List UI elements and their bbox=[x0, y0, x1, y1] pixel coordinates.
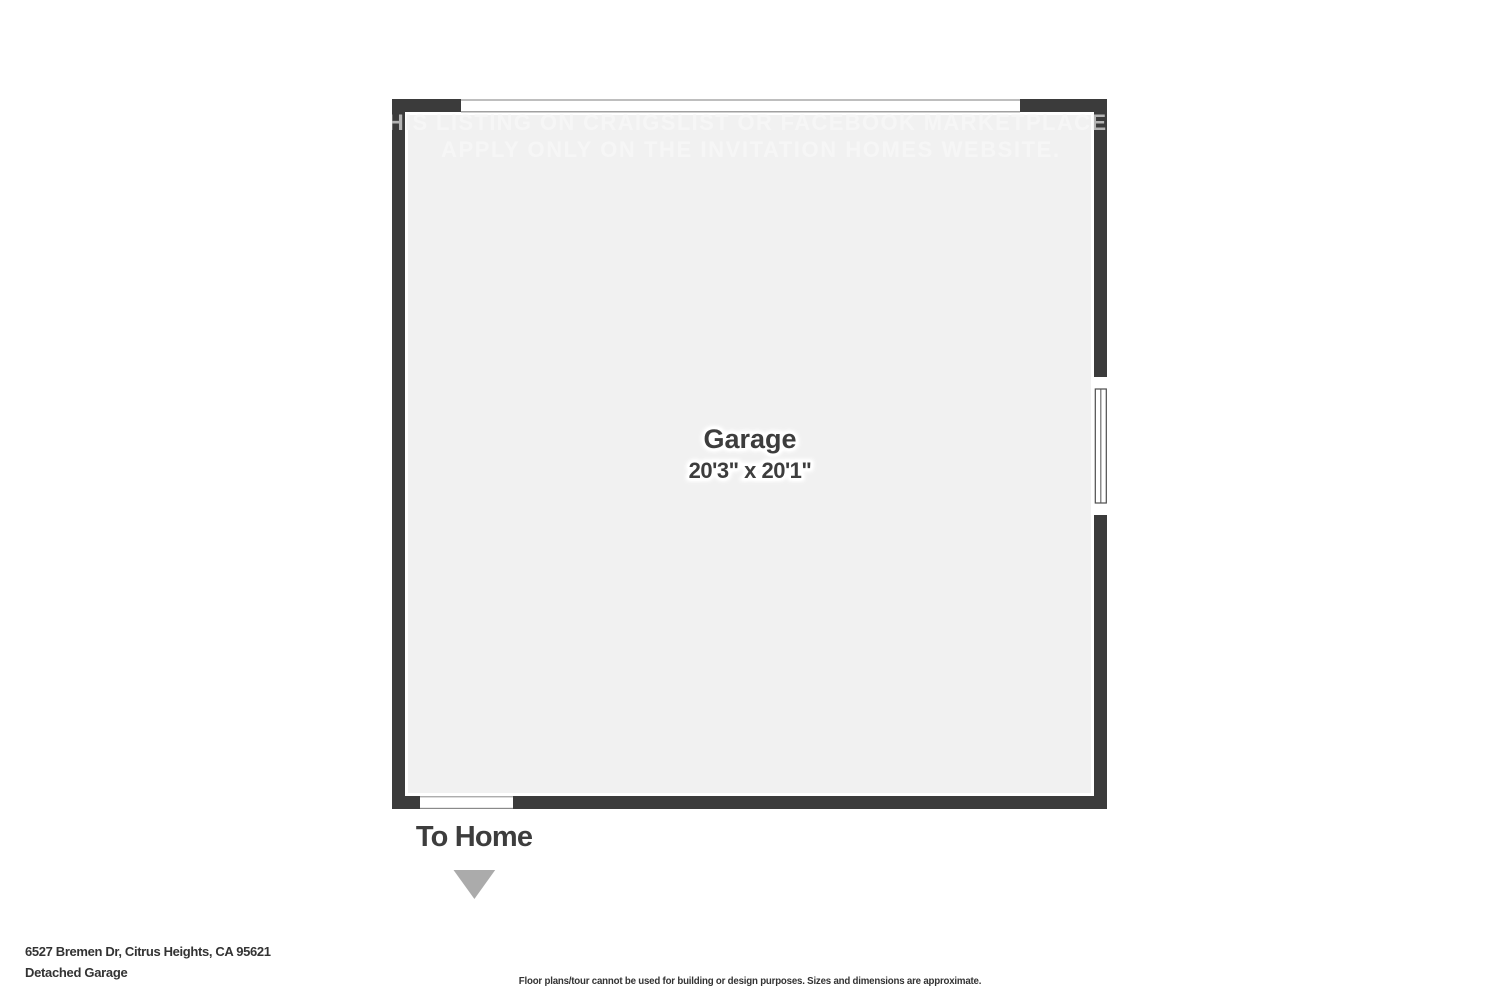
svg-text:Floor plans/tour cannot be use: Floor plans/tour cannot be used for buil… bbox=[519, 976, 982, 987]
svg-text:To Home: To Home bbox=[416, 821, 533, 853]
svg-text:6527 Bremen Dr, Citrus Heights: 6527 Bremen Dr, Citrus Heights, CA 95621 bbox=[25, 944, 271, 959]
svg-text:THIS LISTING ON CRAIGSLIST OR: THIS LISTING ON CRAIGSLIST OR FACEBOOK M… bbox=[373, 110, 1106, 135]
svg-text:Detached Garage: Detached Garage bbox=[25, 965, 128, 980]
svg-text:20'3" x 20'1": 20'3" x 20'1" bbox=[689, 458, 812, 483]
svg-text:Garage: Garage bbox=[703, 424, 796, 454]
svg-text:APPLY ONLY ON THE INVITATION H: APPLY ONLY ON THE INVITATION HOMES WEBSI… bbox=[441, 137, 1059, 162]
